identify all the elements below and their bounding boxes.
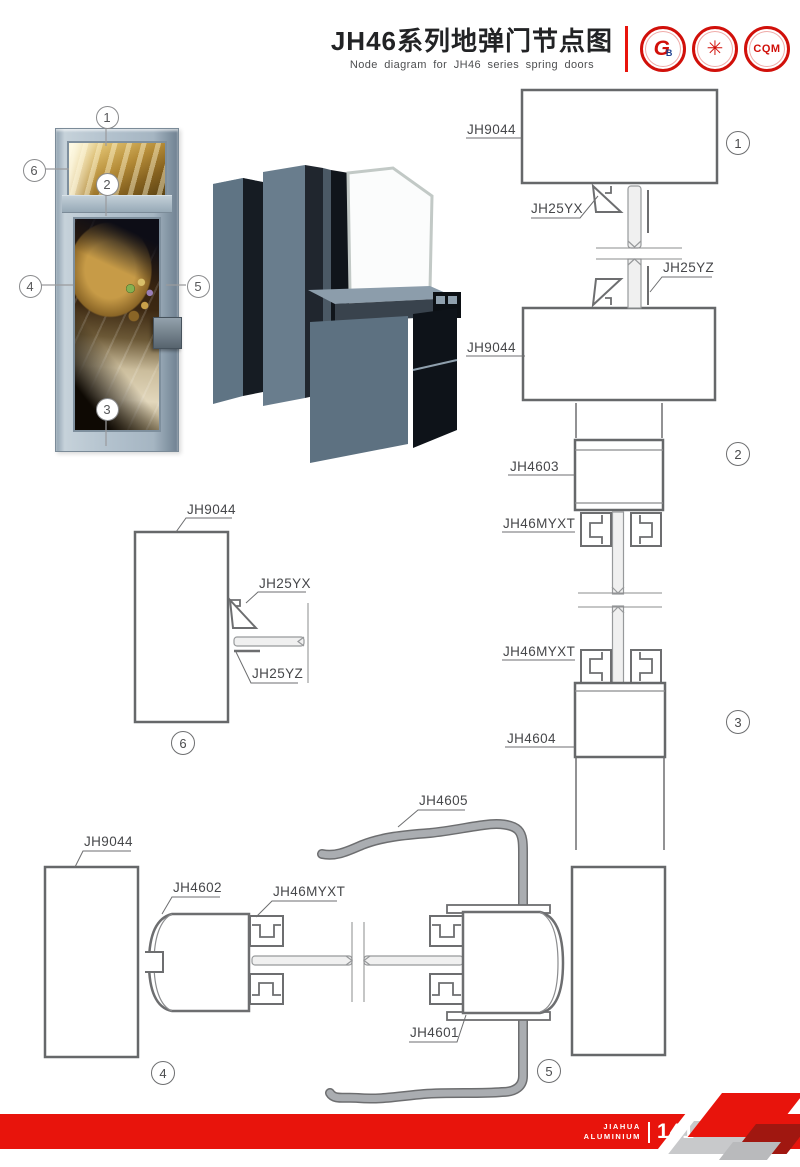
detail-number-6: 6 bbox=[171, 731, 195, 755]
detail-number-1: 1 bbox=[726, 131, 750, 155]
label-d4-clamp: JH46MYXT bbox=[273, 884, 345, 899]
footer-brand: JIAHUA ALUMINIUM bbox=[584, 1122, 641, 1142]
detail-number-2: 2 bbox=[726, 442, 750, 466]
door-callout-3: 3 bbox=[96, 398, 119, 421]
label-d5-cover: JH4605 bbox=[419, 793, 468, 808]
door-callout-4: 4 bbox=[19, 275, 42, 298]
detail-number-3: 3 bbox=[726, 710, 750, 734]
door-callout-1: 1 bbox=[96, 106, 119, 129]
glass-pane-right bbox=[364, 956, 463, 965]
door-callout-5: 5 bbox=[187, 275, 210, 298]
frame-jh9044 bbox=[135, 532, 228, 722]
sill-jh4604 bbox=[575, 683, 665, 757]
footer-divider bbox=[648, 1122, 650, 1143]
label-d2-clamp: JH46MYXT bbox=[503, 516, 575, 531]
footer-brand-line1: JIAHUA bbox=[584, 1122, 641, 1132]
label-d6-bead-x: JH25YX bbox=[259, 576, 311, 591]
door-callout-6: 6 bbox=[23, 159, 46, 182]
label-d5-stile: JH4601 bbox=[410, 1025, 459, 1040]
glass-pane bbox=[613, 512, 624, 594]
stile-jh4601 bbox=[447, 905, 563, 1020]
stile-jh4602 bbox=[145, 914, 249, 1011]
label-d1-bead-x: JH25YX bbox=[531, 201, 583, 216]
label-d4-stile: JH4602 bbox=[173, 880, 222, 895]
detail-6-drawing bbox=[135, 532, 308, 722]
label-d2-frame: JH4603 bbox=[510, 459, 559, 474]
diagram-lineart bbox=[0, 0, 800, 1167]
label-d3-clamp: JH46MYXT bbox=[503, 644, 575, 659]
label-d1-top-frame: JH9044 bbox=[467, 122, 516, 137]
frame-jh9044-left bbox=[45, 867, 138, 1057]
frame-right bbox=[572, 867, 665, 1055]
glass-pane-top bbox=[628, 186, 641, 248]
cover-jh4605-top bbox=[322, 824, 523, 909]
catalog-page: JH46系列地弹门节点图 Node diagram for JH46 serie… bbox=[0, 0, 800, 1167]
label-d1-bead-z: JH25YZ bbox=[663, 260, 714, 275]
bead-jh25yx-bottom bbox=[593, 279, 621, 305]
footer-content: JIAHUA ALUMINIUM 141 bbox=[565, 1117, 695, 1147]
glass-pane-bottom bbox=[628, 259, 641, 308]
detail-1-drawing bbox=[522, 90, 717, 400]
detail-number-5: 5 bbox=[537, 1059, 561, 1083]
glass-pane-left bbox=[252, 956, 352, 965]
door-callout-2: 2 bbox=[96, 173, 119, 196]
label-d6-frame: JH9044 bbox=[187, 502, 236, 517]
detail-number-4: 4 bbox=[151, 1061, 175, 1085]
bead-jh25yx-top bbox=[593, 186, 621, 212]
detail-4-5-drawing bbox=[45, 824, 665, 1098]
label-d1-bottom-frame: JH9044 bbox=[467, 340, 516, 355]
footer-brand-line2: ALUMINIUM bbox=[584, 1132, 641, 1142]
page-number: 141 bbox=[657, 1120, 695, 1144]
bead-jh25yx bbox=[230, 600, 256, 628]
glass-pane bbox=[234, 637, 304, 646]
label-d6-bead-z: JH25YZ bbox=[252, 666, 303, 681]
detail-2-3-drawing bbox=[575, 403, 665, 850]
label-d4-frame: JH9044 bbox=[84, 834, 133, 849]
label-d3-sill: JH4604 bbox=[507, 731, 556, 746]
